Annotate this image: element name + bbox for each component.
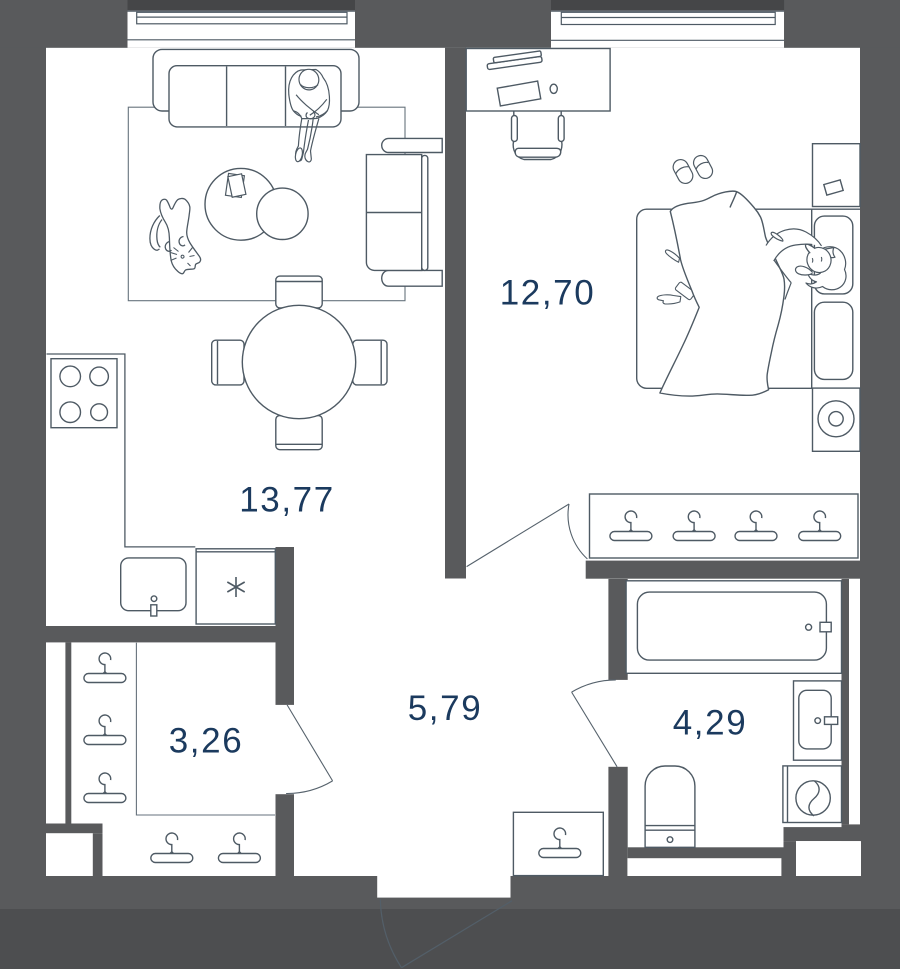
svg-text:4,29: 4,29	[673, 704, 748, 743]
svg-text:13,77: 13,77	[239, 481, 335, 520]
svg-text:12,70: 12,70	[500, 274, 596, 313]
svg-text:3,26: 3,26	[169, 722, 244, 761]
svg-text:5,79: 5,79	[408, 689, 483, 728]
